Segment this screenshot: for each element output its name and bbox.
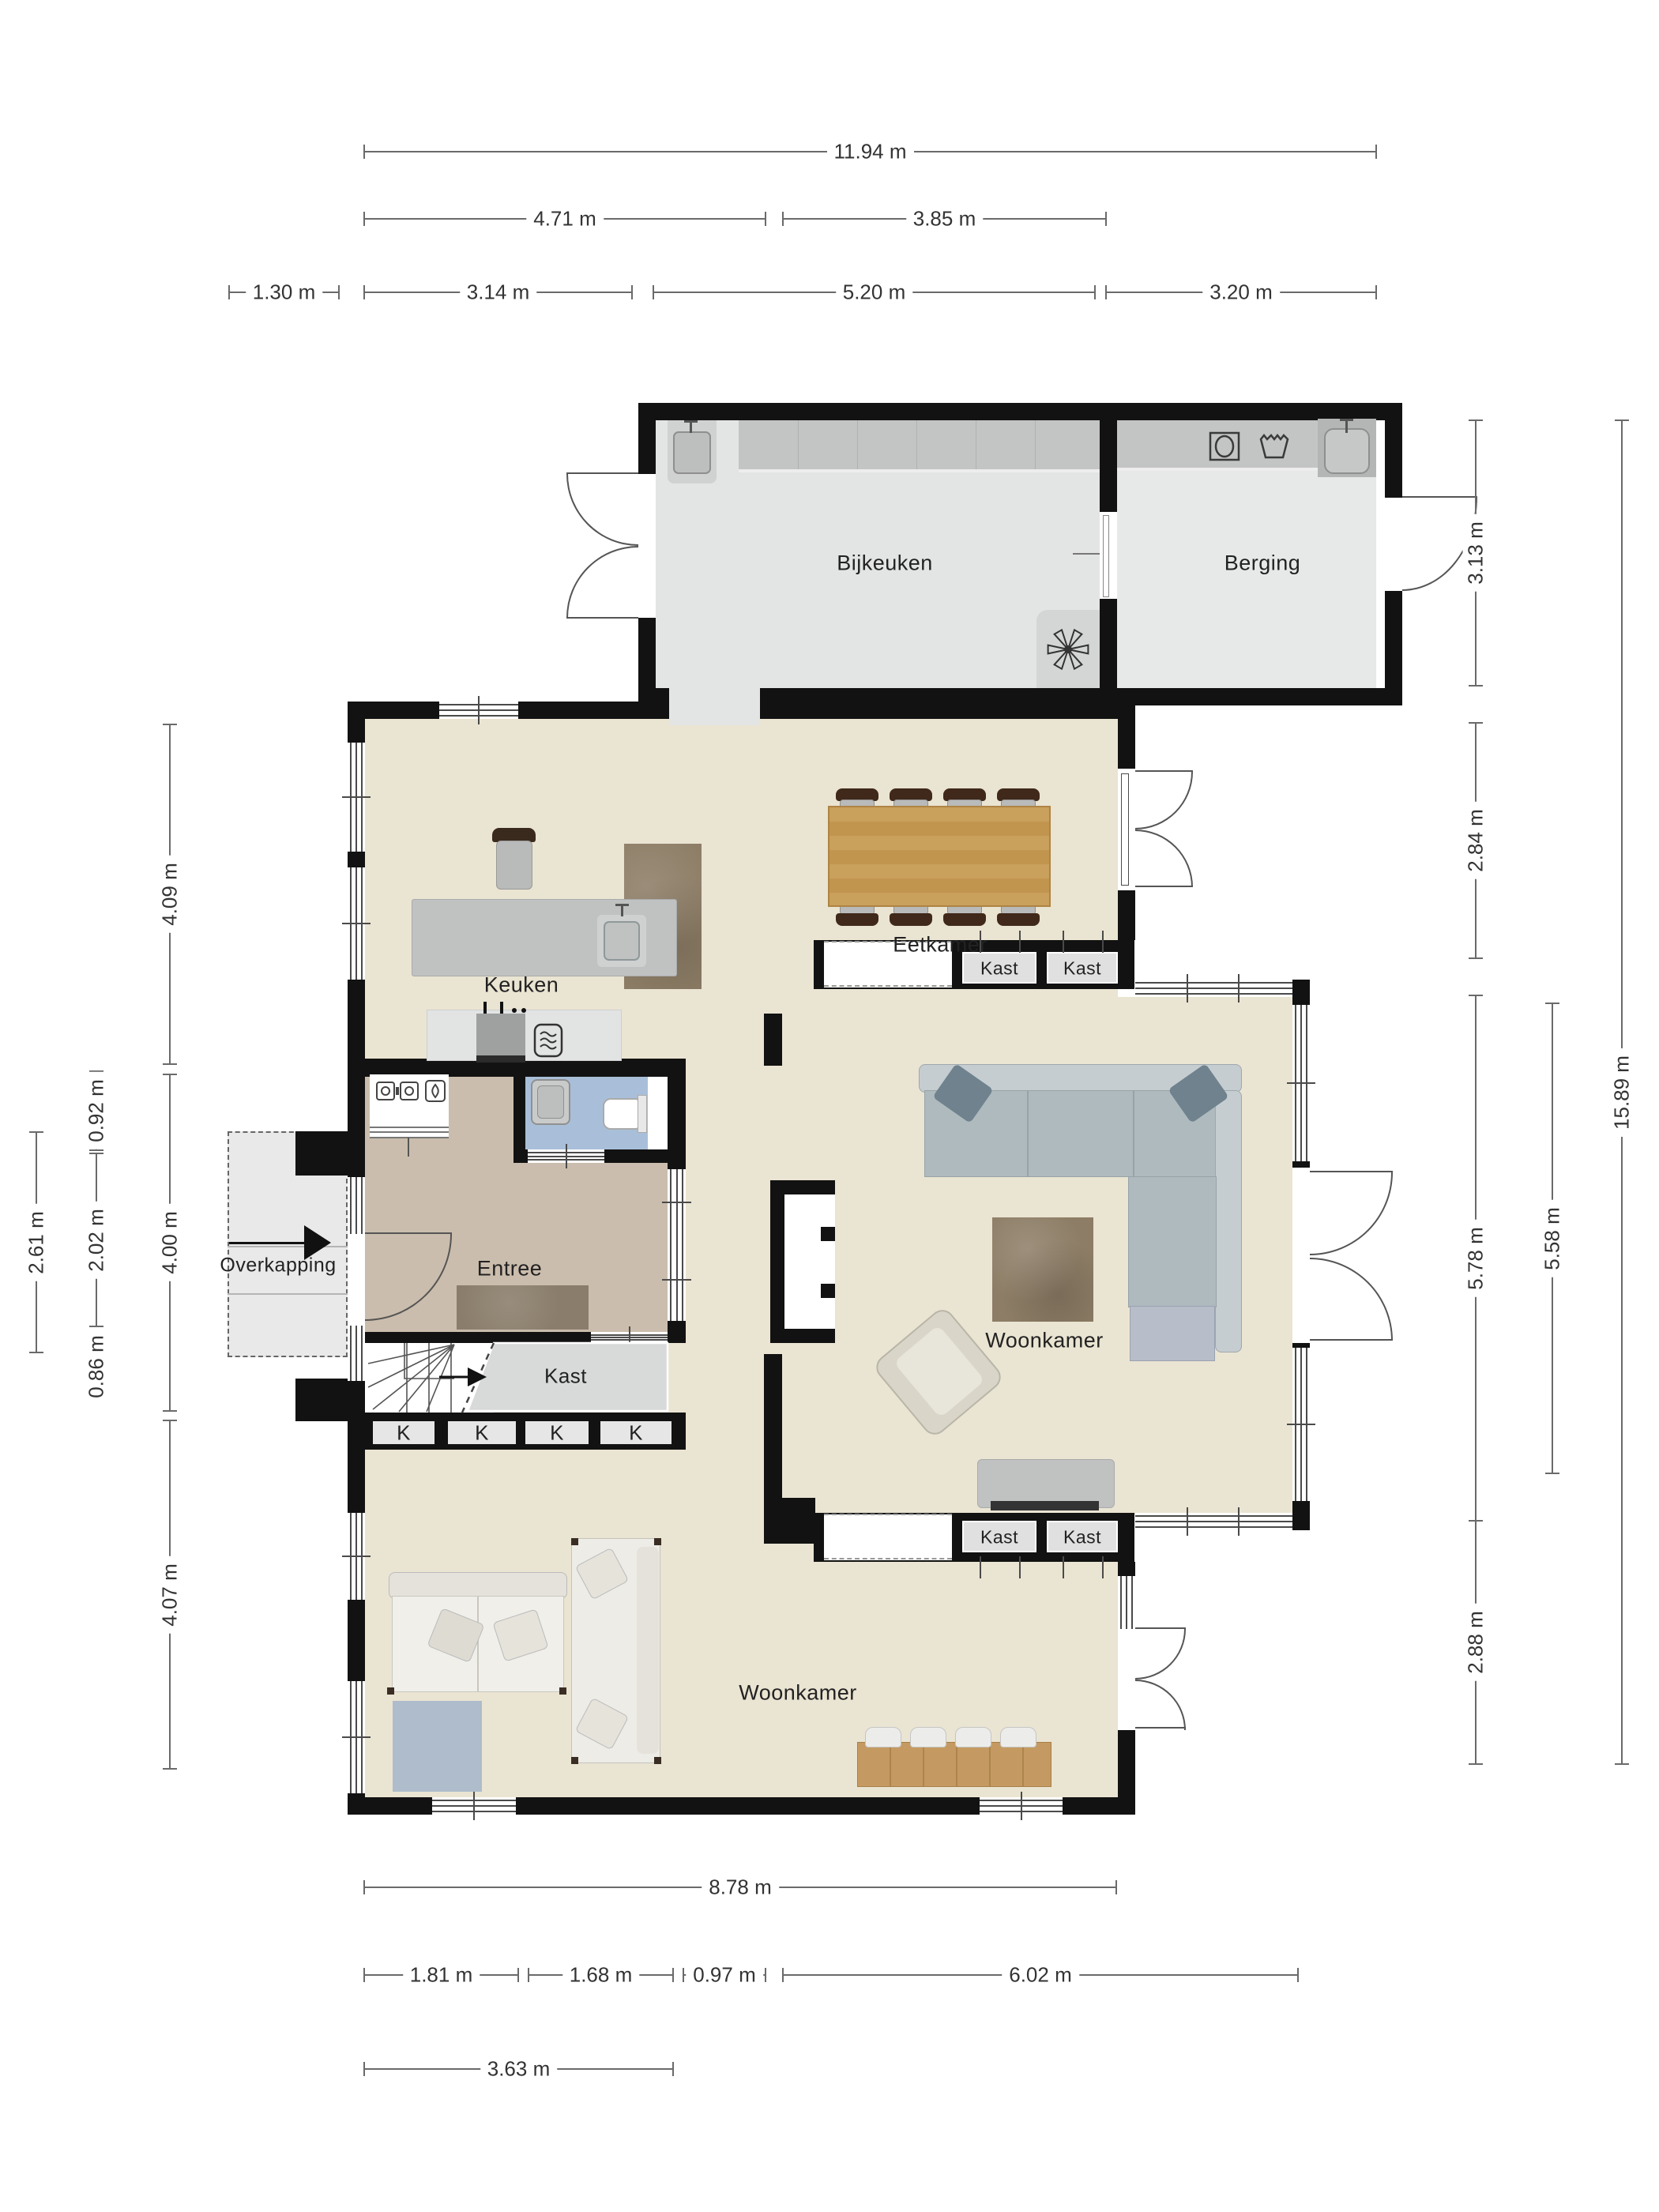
- room-label-bijkeuken: Bijkeuken: [837, 551, 933, 576]
- dimension-label: 3.14 m: [460, 280, 537, 306]
- room-label-woonkamer-upper: Woonkamer: [985, 1329, 1104, 1353]
- dimension-end-tick: [1469, 685, 1483, 687]
- closet-label-kast: Kast: [1063, 1527, 1101, 1548]
- dimension-end-tick: [672, 2062, 674, 2076]
- dimension-end-tick: [228, 285, 230, 299]
- dimension-end-tick: [1469, 1763, 1483, 1765]
- dimension-end-tick: [163, 724, 177, 725]
- dimension-end-tick: [363, 2062, 365, 2076]
- dimension-end-tick: [1375, 285, 1377, 299]
- stairs-and-lines-layer: [0, 0, 1659, 2212]
- dimension-label: 2.88 m: [1463, 1604, 1489, 1681]
- dimension-end-tick: [363, 285, 365, 299]
- dimension-label: 3.63 m: [480, 2056, 558, 2082]
- dimension-label: 4.71 m: [526, 206, 604, 232]
- dimension-label: 3.85 m: [906, 206, 984, 232]
- dimension-label: 3.13 m: [1463, 514, 1489, 592]
- dimension-end-tick: [89, 1149, 103, 1151]
- dimension-end-tick: [89, 1153, 103, 1154]
- dimension-label: 8.78 m: [702, 1875, 779, 1901]
- dimension-label: 15.89 m: [1609, 1048, 1635, 1137]
- dimension-label: 6.02 m: [1002, 1962, 1079, 1988]
- closet-label-k: K: [397, 1421, 411, 1446]
- dimension-end-tick: [782, 1968, 784, 1982]
- dimension-label: 0.97 m: [686, 1962, 763, 1988]
- dimension-label: 2.61 m: [24, 1204, 50, 1281]
- dimension-label: 2.84 m: [1463, 802, 1489, 879]
- dimension-label: 4.07 m: [157, 1556, 183, 1634]
- dimension-label: 0.92 m: [84, 1072, 110, 1149]
- dimension-end-tick: [1615, 419, 1629, 421]
- dimension-end-tick: [528, 1968, 529, 1982]
- dimension-end-tick: [672, 1968, 674, 1982]
- dimension-label: 5.58 m: [1540, 1200, 1566, 1277]
- dimension-end-tick: [29, 1352, 43, 1353]
- dimension-end-tick: [163, 1063, 177, 1065]
- dimension-end-tick: [163, 1768, 177, 1770]
- dimension-end-tick: [363, 212, 365, 226]
- closet-label-kast: Kast: [980, 1527, 1018, 1548]
- room-label-woonkamer-lower: Woonkamer: [739, 1681, 857, 1706]
- dimension-end-tick: [1105, 285, 1107, 299]
- closet-label-k: K: [550, 1421, 564, 1446]
- room-label-entree: Entree: [477, 1257, 543, 1281]
- dimension-end-tick: [1469, 957, 1483, 959]
- dimension-end-tick: [163, 1074, 177, 1075]
- dimension-end-tick: [782, 212, 784, 226]
- dimension-end-tick: [363, 1880, 365, 1894]
- dimension-end-tick: [1615, 1763, 1629, 1765]
- dimension-end-tick: [1545, 1003, 1559, 1004]
- dimension-end-tick: [1094, 285, 1096, 299]
- dimension-label: 1.81 m: [403, 1962, 480, 1988]
- dimension-end-tick: [683, 1968, 684, 1982]
- dimension-end-tick: [1545, 1473, 1559, 1474]
- dimension-label: 3.20 m: [1202, 280, 1280, 306]
- closet-label-kast: Kast: [1063, 958, 1101, 980]
- dimension-end-tick: [517, 1968, 519, 1982]
- dimension-end-tick: [765, 212, 766, 226]
- dimension-end-tick: [765, 1968, 766, 1982]
- room-label-eetkamer: Eetkamer: [893, 933, 987, 957]
- room-label-overkapping: Overkapping: [220, 1255, 336, 1277]
- dimension-end-tick: [163, 1420, 177, 1421]
- floor-plan: BijkeukenBergingKeukenEetkamerWoonkamerW…: [0, 0, 1659, 2212]
- dimension-label: 5.78 m: [1463, 1220, 1489, 1297]
- dimension-end-tick: [1115, 1880, 1117, 1894]
- dimension-end-tick: [29, 1131, 43, 1133]
- dimension-end-tick: [163, 1410, 177, 1412]
- dimension-end-tick: [1297, 1968, 1299, 1982]
- dimension-end-tick: [363, 1968, 365, 1982]
- dimension-label: 4.09 m: [157, 856, 183, 933]
- room-label-berging: Berging: [1224, 551, 1301, 576]
- closet-label-k: K: [629, 1421, 643, 1446]
- dimension-label: 2.02 m: [84, 1202, 110, 1279]
- dimension-end-tick: [1469, 722, 1483, 724]
- room-label-kast: Kast: [544, 1364, 587, 1389]
- dimension-label: 4.00 m: [157, 1204, 183, 1281]
- dimension-end-tick: [631, 285, 633, 299]
- dimension-label: 5.20 m: [836, 280, 913, 306]
- dimension-end-tick: [1469, 419, 1483, 421]
- dimension-end-tick: [1469, 1520, 1483, 1522]
- dimension-label: 0.86 m: [84, 1328, 110, 1405]
- closet-label-k: K: [475, 1421, 489, 1446]
- closet-label-kast: Kast: [980, 958, 1018, 980]
- room-label-keuken: Keuken: [484, 973, 559, 998]
- dimension-end-tick: [653, 285, 654, 299]
- dimension-end-tick: [1469, 995, 1483, 996]
- dimension-label: 1.30 m: [246, 280, 323, 306]
- dimension-end-tick: [89, 1326, 103, 1327]
- dimension-end-tick: [1375, 145, 1377, 159]
- dimension-end-tick: [363, 145, 365, 159]
- dimension-label: 1.68 m: [562, 1962, 640, 1988]
- dimension-end-tick: [1105, 212, 1107, 226]
- dimension-label: 11.94 m: [826, 139, 913, 165]
- dimension-end-tick: [338, 285, 340, 299]
